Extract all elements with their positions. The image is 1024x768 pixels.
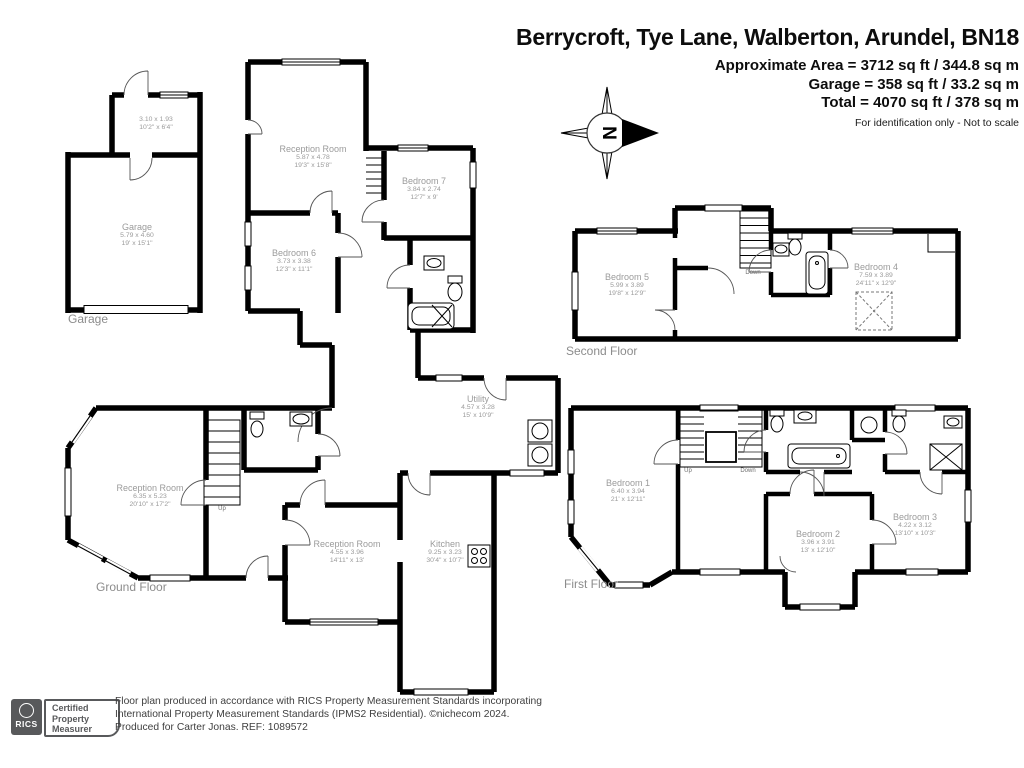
disclaimer-note: For identification only - Not to scale <box>516 117 1019 129</box>
rics-emblem-icon <box>19 703 34 718</box>
page-title: Berrycroft, Tye Lane, Walberton, Arundel… <box>516 24 1019 51</box>
first-floor-walls <box>568 405 971 610</box>
stairs-down-label-second: Down <box>733 270 773 276</box>
stairs-down-label-first: Down <box>728 468 768 474</box>
floorplan-page: Berrycroft, Tye Lane, Walberton, Arundel… <box>0 0 1024 768</box>
footer-line-2: International Property Measurement Stand… <box>115 708 542 721</box>
caption-ground-floor: Ground Floor <box>96 580 167 594</box>
area-line-total-approx: Approximate Area = 3712 sq ft / 344.8 sq… <box>516 57 1019 76</box>
stairs-up-label-first: Up <box>668 468 708 474</box>
ground-upper-wing-walls <box>245 59 476 408</box>
caption-garage: Garage <box>68 312 108 326</box>
area-line-garage: Garage = 358 sq ft / 33.2 sq m <box>516 76 1019 95</box>
area-summary: Approximate Area = 3712 sq ft / 344.8 sq… <box>516 57 1019 113</box>
compass-north-letter: N <box>595 122 619 144</box>
footer-attribution: Floor plan produced in accordance with R… <box>115 695 542 734</box>
ground-main-block-walls <box>65 375 558 695</box>
rics-logo-text: RICS <box>11 719 42 729</box>
caption-first-floor: First Floor <box>564 577 618 591</box>
footer-line-3: Produced for Carter Jonas. REF: 1089572 <box>115 721 542 734</box>
footer-line-1: Floor plan produced in accordance with R… <box>115 695 542 708</box>
rics-logo: RICS <box>11 699 42 735</box>
caption-second-floor: Second Floor <box>566 344 637 358</box>
garage-plan-walls <box>68 71 202 314</box>
stairs-up-label-ground: Up <box>202 506 242 512</box>
certified-property-measurer-badge: Certified Property Measurer <box>44 699 120 737</box>
area-line-total: Total = 4070 sq ft / 378 sq m <box>516 94 1019 113</box>
header: Berrycroft, Tye Lane, Walberton, Arundel… <box>516 24 1019 129</box>
